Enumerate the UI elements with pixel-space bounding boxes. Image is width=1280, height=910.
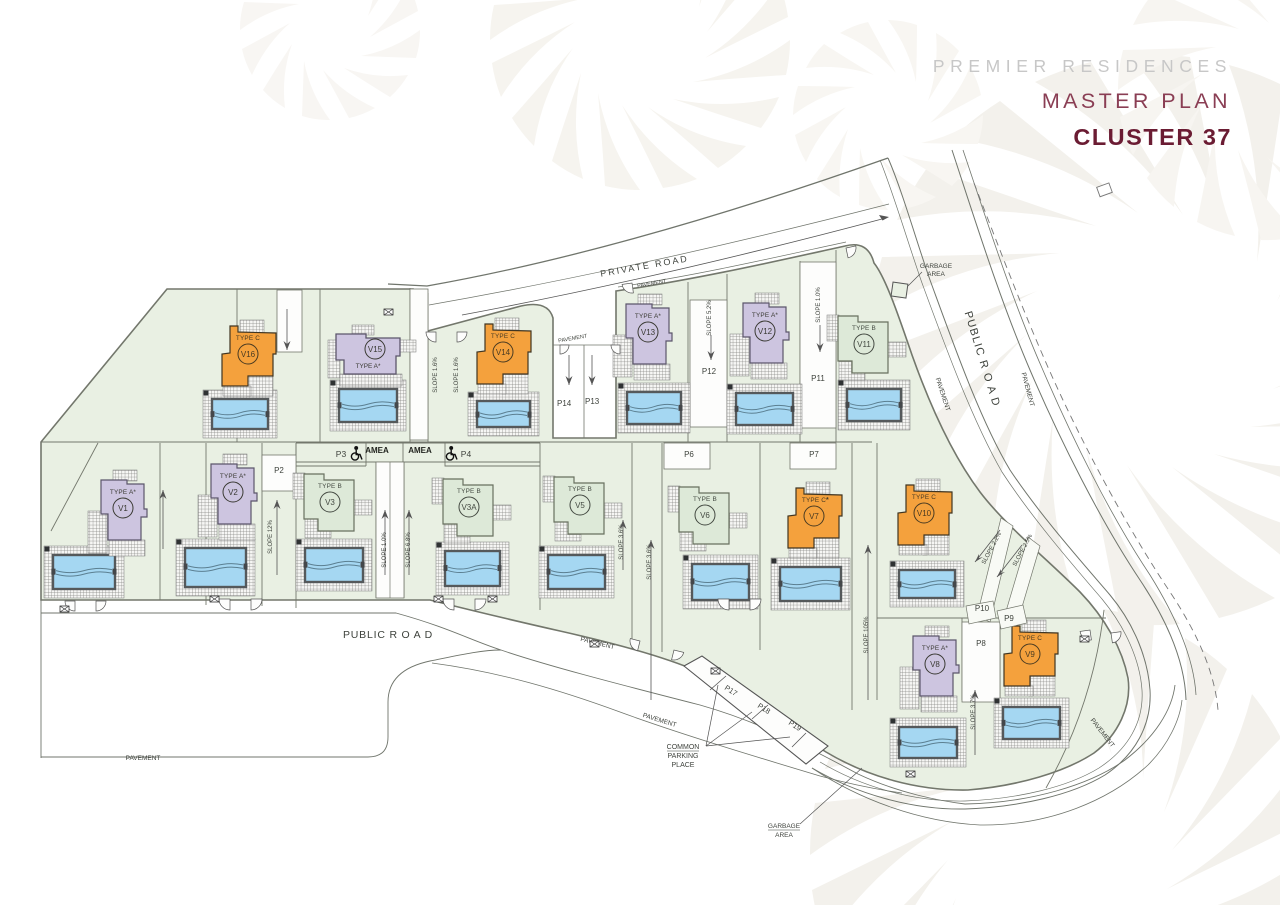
svg-text:V12: V12: [758, 327, 773, 336]
svg-text:AREA: AREA: [927, 271, 945, 278]
svg-text:SLOPE 3.7%: SLOPE 3.7%: [971, 694, 977, 730]
svg-text:V10: V10: [917, 509, 932, 518]
svg-text:P11: P11: [811, 374, 825, 383]
svg-text:P14: P14: [557, 399, 572, 408]
svg-text:TYPE C: TYPE C: [1018, 635, 1042, 642]
svg-text:V9: V9: [1025, 650, 1035, 659]
svg-text:MASTER PLAN: MASTER PLAN: [1042, 89, 1231, 113]
svg-text:PARKING: PARKING: [668, 753, 699, 760]
svg-text:P12: P12: [702, 367, 717, 376]
svg-text:TYPE B: TYPE B: [457, 488, 481, 495]
svg-text:GARBAGE: GARBAGE: [768, 823, 801, 830]
svg-text:SLOPE 3.6%: SLOPE 3.6%: [647, 544, 653, 580]
svg-text:TYPE A*: TYPE A*: [752, 312, 779, 319]
svg-text:V2: V2: [228, 488, 238, 497]
svg-text:V13: V13: [641, 328, 656, 337]
svg-text:V11: V11: [857, 340, 871, 349]
svg-text:TYPE A*: TYPE A*: [635, 313, 662, 320]
svg-text:PAVEMENT: PAVEMENT: [126, 755, 161, 762]
svg-text:P6: P6: [684, 450, 694, 459]
svg-text:COMMON: COMMON: [667, 744, 700, 751]
svg-text:AREA: AREA: [775, 832, 793, 839]
svg-text:PUBLIC R O A D: PUBLIC R O A D: [343, 629, 433, 641]
svg-text:*: *: [826, 497, 829, 504]
svg-text:SLOPE 12%: SLOPE 12%: [268, 519, 274, 553]
svg-text:TYPE A*: TYPE A*: [220, 473, 247, 480]
svg-text:TYPE C: TYPE C: [236, 335, 260, 342]
svg-text:P3: P3: [336, 449, 347, 459]
svg-text:V3: V3: [325, 498, 335, 507]
svg-text:P10: P10: [975, 604, 990, 613]
svg-text:AMEA: AMEA: [408, 446, 432, 455]
svg-text:V16: V16: [241, 350, 256, 359]
svg-text:SLOPE 1.6%: SLOPE 1.6%: [433, 357, 439, 393]
svg-text:V8: V8: [930, 660, 940, 669]
svg-text:SLOPE 105%: SLOPE 105%: [864, 616, 870, 654]
svg-text:SLOPE 3.6%: SLOPE 3.6%: [619, 524, 625, 560]
svg-text:SLOPE 1.6%: SLOPE 1.6%: [454, 357, 460, 393]
svg-text:P13: P13: [585, 397, 600, 406]
svg-text:V15: V15: [368, 345, 383, 354]
svg-text:P9: P9: [1004, 614, 1014, 623]
svg-text:TYPE A*: TYPE A*: [922, 645, 949, 652]
svg-text:GARBAGE: GARBAGE: [920, 263, 953, 270]
svg-text:TYPE B: TYPE B: [693, 496, 717, 503]
svg-text:TYPE B: TYPE B: [852, 325, 876, 332]
svg-text:P8: P8: [976, 639, 986, 648]
svg-text:P4: P4: [461, 449, 472, 459]
svg-text:AMEA: AMEA: [365, 446, 389, 455]
svg-text:TYPE B: TYPE B: [318, 483, 342, 490]
svg-text:TYPE C: TYPE C: [802, 497, 826, 504]
svg-text:TYPE C: TYPE C: [491, 333, 515, 340]
svg-text:V7: V7: [809, 512, 819, 521]
svg-text:TYPE A*: TYPE A*: [356, 363, 381, 370]
svg-text:V1: V1: [118, 504, 128, 513]
svg-text:PREMIER RESIDENCES: PREMIER RESIDENCES: [933, 56, 1232, 76]
svg-text:PLACE: PLACE: [672, 762, 695, 769]
svg-text:TYPE C: TYPE C: [912, 494, 936, 501]
svg-text:P2: P2: [274, 466, 284, 475]
svg-text:V3A: V3A: [461, 503, 477, 512]
svg-text:CLUSTER 37: CLUSTER 37: [1073, 124, 1232, 150]
svg-text:SLOPE 1.0%: SLOPE 1.0%: [816, 287, 822, 323]
svg-text:TYPE A*: TYPE A*: [110, 489, 137, 496]
svg-text:P7: P7: [809, 450, 819, 459]
svg-text:V5: V5: [575, 501, 585, 510]
svg-text:V6: V6: [700, 511, 710, 520]
svg-text:SLOPE 5.2%: SLOPE 5.2%: [707, 300, 713, 336]
svg-text:TYPE B: TYPE B: [568, 486, 592, 493]
svg-text:V14: V14: [496, 348, 511, 357]
